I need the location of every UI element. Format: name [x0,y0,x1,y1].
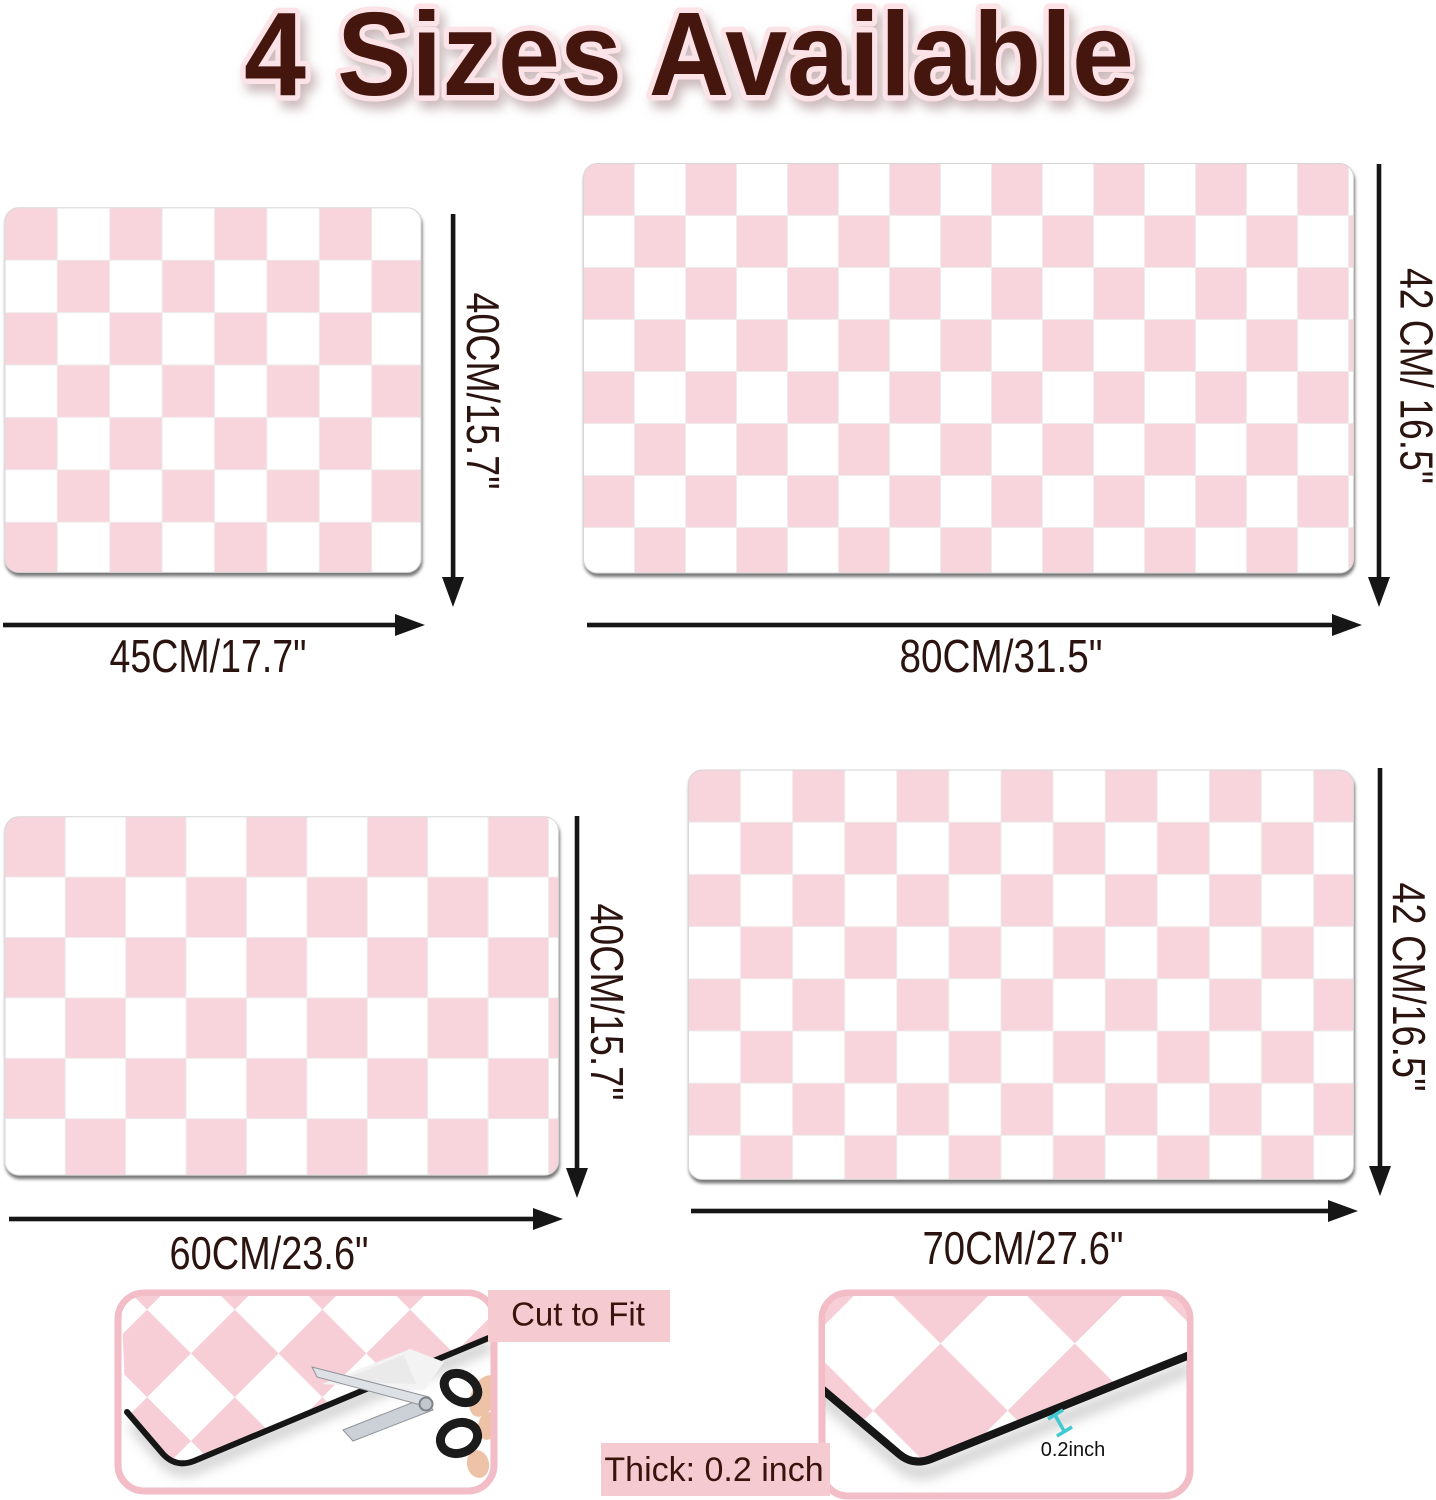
svg-text:42 CM/ 16.5": 42 CM/ 16.5" [1390,268,1436,484]
svg-text:Thick: 0.2 inch: Thick: 0.2 inch [604,1451,823,1489]
svg-text:45CM/17.7": 45CM/17.7" [110,630,307,682]
svg-text:80CM/31.5": 80CM/31.5" [900,630,1103,682]
svg-text:0.2inch: 0.2inch [1041,1439,1106,1461]
svg-text:4 Sizes Available: 4 Sizes Available [244,0,1134,121]
svg-text:Cut to Fit: Cut to Fit [511,1296,645,1333]
svg-text:70CM/27.6": 70CM/27.6" [923,1222,1124,1274]
svg-text:42 CM/16.5": 42 CM/16.5" [1383,883,1435,1092]
svg-text:40CM/15.7": 40CM/15.7" [457,293,509,490]
svg-text:60CM/23.6": 60CM/23.6" [170,1227,369,1279]
svg-text:40CM/15.7": 40CM/15.7" [581,904,633,1101]
